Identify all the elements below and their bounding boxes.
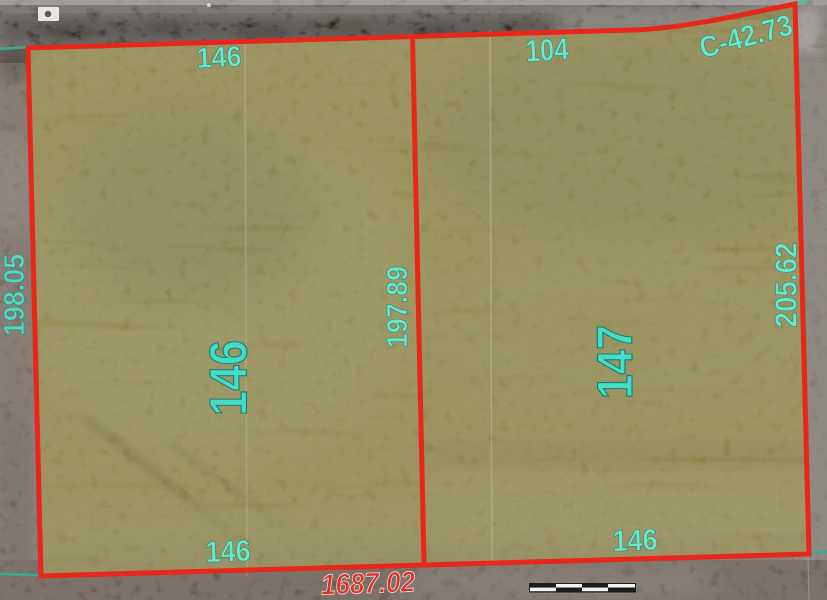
svg-text:146: 146 (612, 524, 658, 559)
svg-text:198.05: 198.05 (0, 254, 31, 336)
svg-text:146: 146 (200, 340, 259, 416)
svg-text:197.89: 197.89 (382, 266, 414, 348)
svg-text:147: 147 (587, 325, 643, 399)
svg-text:205.62: 205.62 (769, 243, 804, 328)
svg-text:146: 146 (205, 535, 251, 570)
svg-text:146: 146 (196, 41, 243, 75)
svg-text:1687.02: 1687.02 (320, 566, 415, 600)
svg-text:104: 104 (525, 31, 570, 68)
